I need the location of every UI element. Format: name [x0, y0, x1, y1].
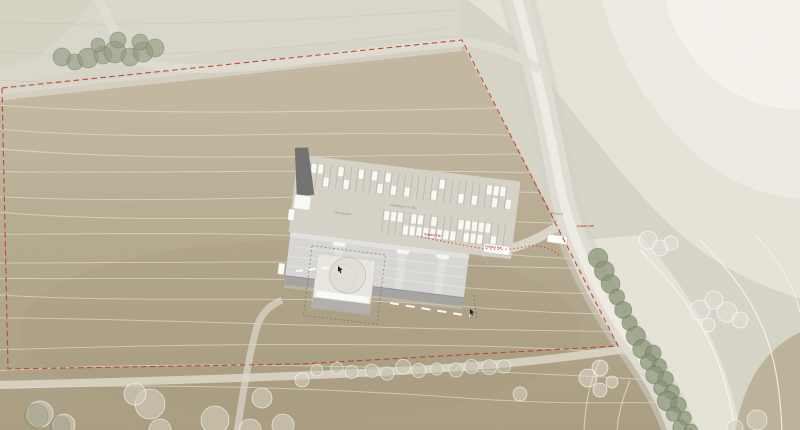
texture-overlay	[0, 0, 800, 430]
site-plan-canvas: Parkplatz 70 Stp. Übungshof Zufahrt FW Z…	[0, 0, 800, 430]
